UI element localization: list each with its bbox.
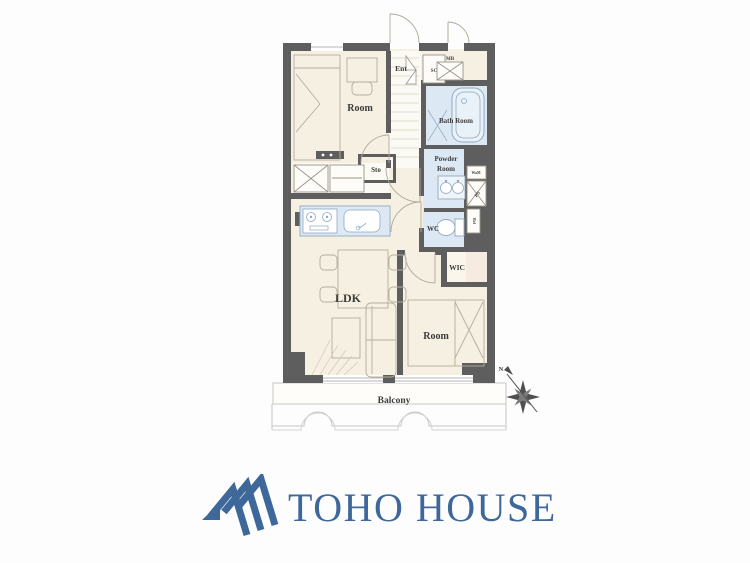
meter-box-icon <box>437 62 463 80</box>
floor-plan-page: Balcony <box>0 0 750 563</box>
stove-icon <box>303 209 337 233</box>
vanity-sink-icon <box>438 176 465 199</box>
balcony: Balcony <box>272 383 506 430</box>
entrance-door-arc <box>390 14 419 43</box>
label-ldk: LDK <box>335 291 362 305</box>
label-mb: MB <box>446 57 455 62</box>
label-sto: Sto <box>371 166 381 174</box>
meter-box-door-arc <box>448 22 469 43</box>
compass-north-label: N <box>499 366 504 373</box>
closet-x-icon <box>294 165 328 192</box>
label-ent: Ent <box>395 64 407 73</box>
label-bath-room: Bath Room <box>439 117 473 125</box>
kitchen-counter <box>300 206 390 236</box>
toho-house-logo-mark <box>200 474 290 544</box>
label-room-bottom: Room <box>423 331 449 342</box>
label-powder-line1: Powder <box>435 155 458 163</box>
closet-shelf-icon <box>330 165 364 192</box>
label-powder-line2: Room <box>437 165 455 173</box>
toho-house-logo-text: TOHO HOUSE <box>288 484 557 531</box>
label-room-top: Room <box>347 103 373 114</box>
label-ref: Ref <box>472 218 476 224</box>
toilet-icon <box>437 219 464 236</box>
label-wc: WC <box>427 225 439 233</box>
label-balcony: Balcony <box>378 396 411 406</box>
label-wam: WaM <box>471 171 480 175</box>
sink-icon <box>344 210 380 232</box>
toho-house-logo: TOHO HOUSE <box>200 474 580 544</box>
label-sc: SC <box>431 69 438 74</box>
label-wic: WIC <box>449 263 465 272</box>
